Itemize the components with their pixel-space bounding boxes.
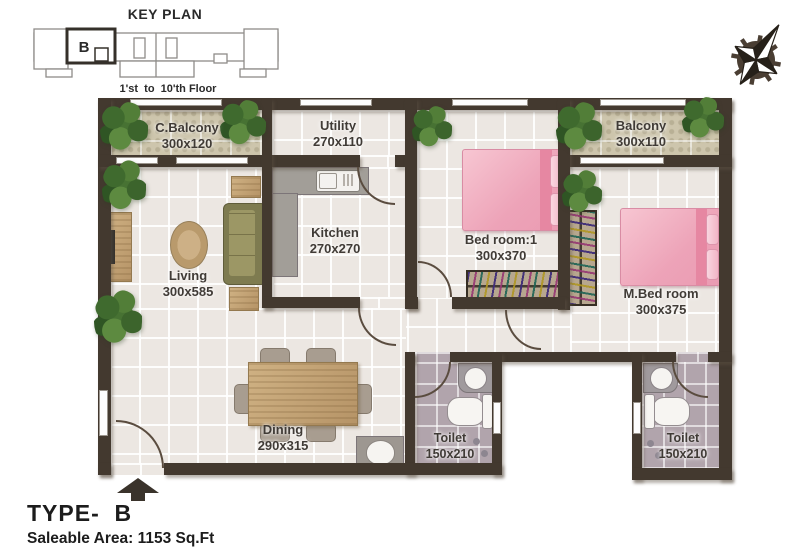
room-dims: 150x210 [633,447,733,463]
room-dims: 300x375 [601,302,721,318]
room-dims: 300x110 [581,134,701,150]
sink-drainer [343,174,355,186]
room-label-c-balcony: C.Balcony 300x120 [127,120,247,153]
room-label-balcony: Balcony 300x110 [581,118,701,151]
window-toilet1-shaft [493,402,501,434]
entrance-arrow-icon [117,478,159,493]
plant-icon [562,170,602,216]
floor-patch-utility-door [358,155,396,167]
plant-icon [102,160,146,214]
dining-table [248,362,358,426]
light-shaft [502,362,632,485]
room-dims: 270x270 [275,241,395,257]
wall-bedroom1-bottom-left [405,297,418,309]
floor-patch-toilet2-door [676,352,708,362]
toilet2-wc-tank [644,394,655,429]
toilet1-vanity [458,363,493,393]
sink-bowl [319,173,337,189]
plant-icon [412,106,452,150]
pillow [706,214,719,245]
wall-bottom-left-stub [98,463,111,475]
wall-utility-inner [262,155,360,167]
wash-basin [366,440,395,465]
room-name: Dining [223,422,343,438]
bed-master-bedroom [620,208,721,286]
compass-rose-icon [716,14,796,106]
wall-toilet2-top-right [708,352,732,362]
saleable-area-label: Saleable Area: 1153 Sq.Ft [27,530,214,548]
room-name: Kitchen [275,225,395,241]
side-table-top [231,176,261,198]
room-label-toilet2: Toilet 150x210 [633,431,733,462]
key-plan-title: KEY PLAN [100,6,230,22]
room-label-living: Living 300x585 [128,268,248,301]
wall-toilets-top [450,352,676,362]
type-label: TYPE- B [27,500,132,527]
wall-kitchen-bottom [262,297,360,308]
floor-patch-toilet1-door [415,352,450,362]
toilet2-basin [650,367,673,390]
window-toilet2-shaft [633,402,641,434]
room-dims: 290x315 [223,438,343,454]
window-top-utility [300,99,372,106]
toilet1-basin [464,367,487,390]
bed-bedroom1 [462,149,566,231]
room-name: Balcony [581,118,701,134]
room-dims: 270x110 [278,134,398,150]
window-top-cbalcony [130,99,222,106]
room-name: Toilet [400,431,500,447]
window-balcony-slider [580,157,664,164]
wall-toilet2-bottom [632,468,732,480]
wall-bottom-main [164,463,502,475]
room-dims: 150x210 [400,447,500,463]
room-name: M.Bed room [601,286,721,302]
key-plan-floor-note: 1'st to 10'th Floor [88,83,248,95]
room-name: Toilet [633,431,733,447]
coffee-table-oval [170,221,208,269]
room-name: Utility [278,118,398,134]
room-dims: 300x120 [127,136,247,152]
room-label-toilet1: Toilet 150x210 [400,431,500,462]
room-label-dining: Dining 290x315 [223,422,343,455]
room-dims: 300x370 [441,248,561,264]
window-top-bedroom1 [452,99,528,106]
room-label-master-bedroom: M.Bed room 300x375 [601,286,721,319]
room-dims: 300x585 [128,284,248,300]
wall-utility-stub [395,155,405,167]
floor-plan-page: KEY PLAN B 1'st to 10'th Floor [0,0,800,557]
key-plan-building-sketch: B [30,24,282,82]
room-label-utility: Utility 270x110 [278,118,398,151]
entrance-arrow-stem [131,492,145,501]
toilet1-wc-bowl [447,397,485,426]
kitchen-sink [316,170,360,192]
toilet2-wc-bowl [652,397,690,426]
sofa-cushions [229,210,255,276]
room-label-kitchen: Kitchen 270x270 [275,225,395,258]
wall-bedroom1-bottom-right [452,297,565,309]
pillow [706,249,719,280]
window-top-balcony [600,99,686,106]
room-name: C.Balcony [127,120,247,136]
key-plan-unit-label: B [79,39,90,56]
room-name: Living [128,268,248,284]
window-cbalcony-right [176,157,248,164]
window-living-left [99,390,108,436]
room-label-bedroom1: Bed room:1 300x370 [441,232,561,265]
room-name: Bed room:1 [441,232,561,248]
